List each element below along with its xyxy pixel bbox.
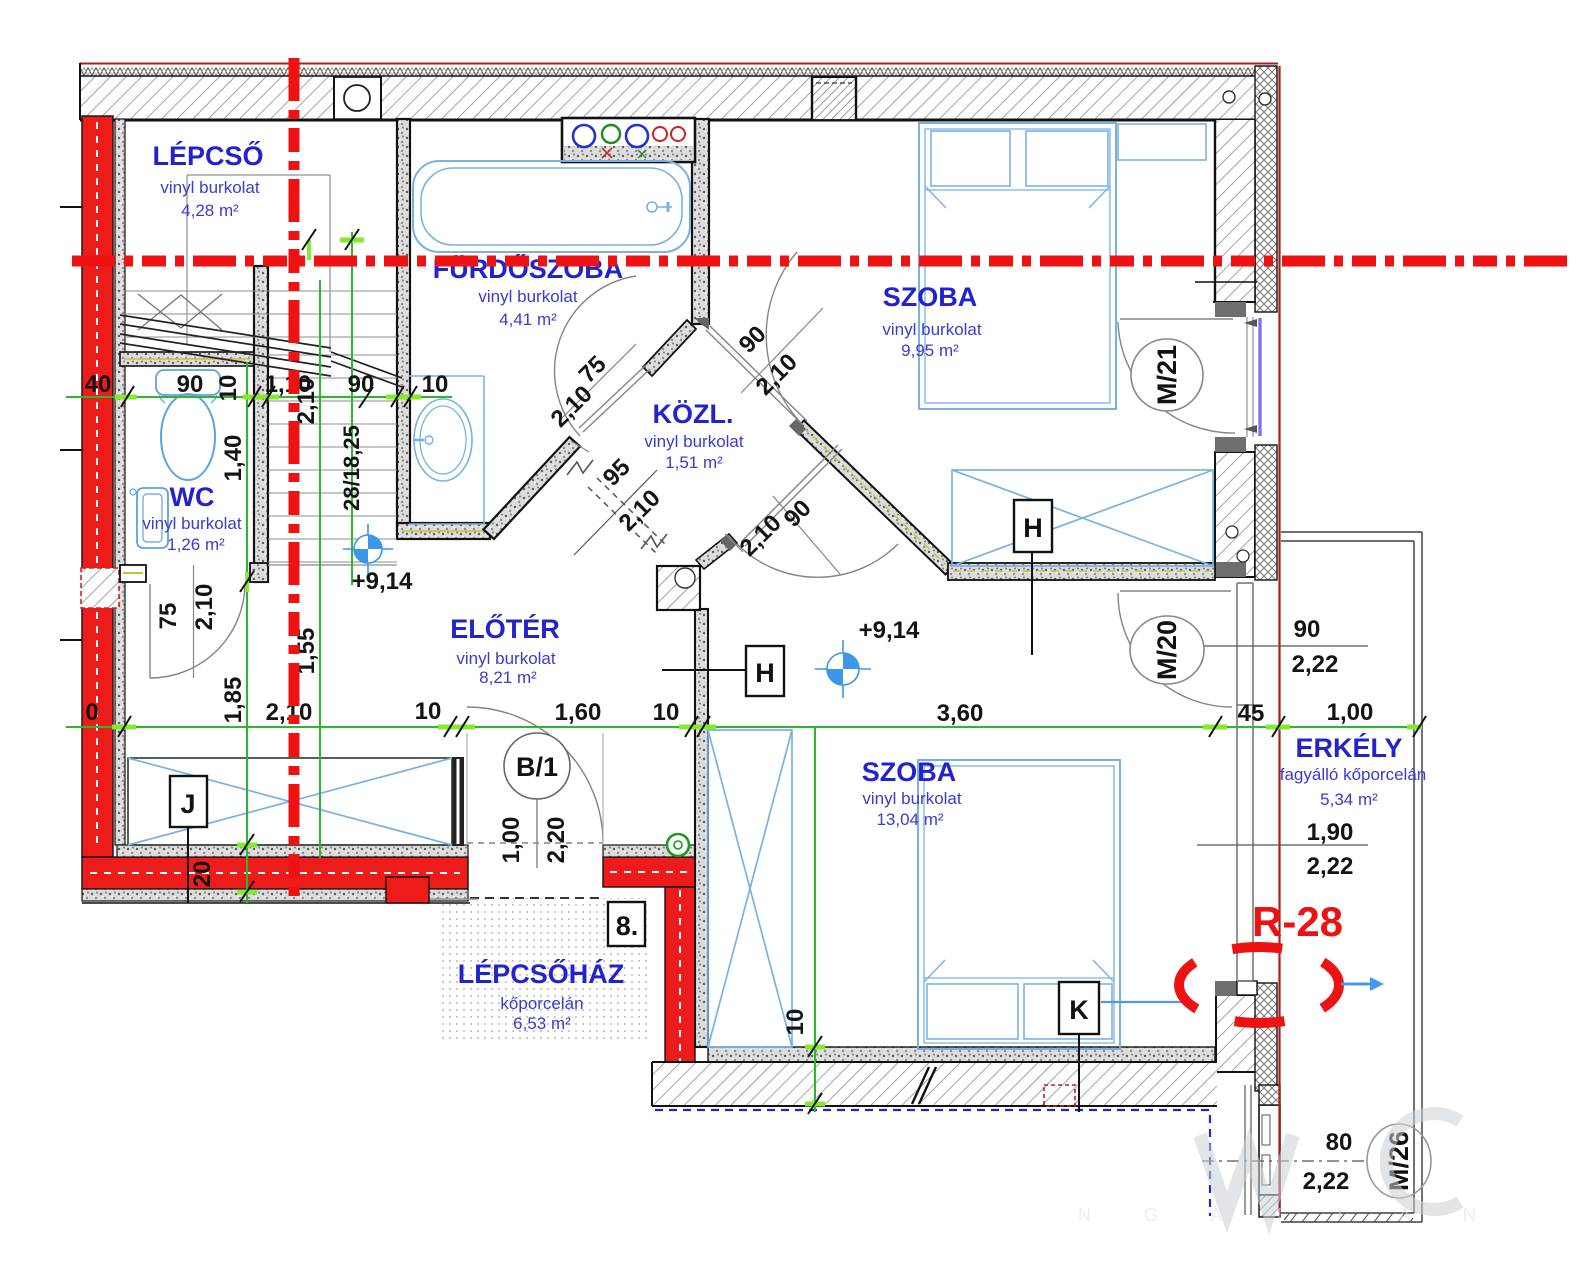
svg-text:3,60: 3,60 <box>937 700 984 727</box>
svg-text:80: 80 <box>1326 1129 1353 1156</box>
svg-text:KÖZL.: KÖZL. <box>653 399 734 429</box>
svg-text:vinyl burkolat: vinyl burkolat <box>478 287 577 306</box>
svg-text:J: J <box>180 789 195 819</box>
svg-text:1,90: 1,90 <box>1307 819 1354 846</box>
svg-text:90: 90 <box>1294 616 1321 643</box>
svg-text:vinyl burkolat: vinyl burkolat <box>882 320 981 339</box>
svg-text:fagyálló kőporcelán: fagyálló kőporcelán <box>1280 765 1426 784</box>
svg-text:SZOBA: SZOBA <box>883 282 978 312</box>
svg-text:ELŐTÉR: ELŐTÉR <box>450 613 560 644</box>
svg-text:H: H <box>755 658 775 688</box>
svg-text:vinyl burkolat: vinyl burkolat <box>160 178 259 197</box>
svg-text:vinyl burkolat: vinyl burkolat <box>644 432 743 451</box>
svg-text:40: 40 <box>85 371 112 398</box>
svg-text:6,53 m²: 6,53 m² <box>513 1014 571 1033</box>
svg-text:ERKÉLY: ERKÉLY <box>1295 732 1402 763</box>
svg-text:2,10: 2,10 <box>191 584 218 631</box>
svg-text:10: 10 <box>415 698 442 725</box>
svg-text:2,20: 2,20 <box>543 817 570 864</box>
svg-text:1,85: 1,85 <box>220 677 247 724</box>
svg-text:9,95 m²: 9,95 m² <box>901 341 959 360</box>
svg-text:2,22: 2,22 <box>1303 1168 1350 1195</box>
svg-text:20: 20 <box>189 861 216 888</box>
svg-text:28/18,25: 28/18,25 <box>339 425 364 511</box>
svg-text:1,00: 1,00 <box>498 817 525 864</box>
svg-text:SZOBA: SZOBA <box>862 757 957 787</box>
svg-text:+9,14: +9,14 <box>352 568 413 595</box>
svg-text:8.: 8. <box>616 911 639 941</box>
svg-text:45: 45 <box>1238 700 1265 727</box>
svg-text:75: 75 <box>155 603 182 630</box>
svg-text:N G A T L A N: N G A T L A N <box>1078 1205 1500 1225</box>
svg-text:4,41 m²: 4,41 m² <box>499 310 557 329</box>
svg-text:vinyl burkolat: vinyl burkolat <box>142 514 241 533</box>
svg-text:LÉPCSŐHÁZ: LÉPCSŐHÁZ <box>458 958 625 989</box>
svg-text:+9,14: +9,14 <box>859 617 920 644</box>
svg-text:vinyl burkolat: vinyl burkolat <box>456 649 555 668</box>
svg-text:K: K <box>1069 995 1089 1025</box>
svg-text:LÉPCSŐ: LÉPCSŐ <box>152 140 263 171</box>
svg-text:R-28: R-28 <box>1252 898 1343 945</box>
svg-text:1,51 m²: 1,51 m² <box>665 453 723 472</box>
svg-text:0: 0 <box>85 699 98 726</box>
svg-text:1,40: 1,40 <box>220 435 247 482</box>
svg-text:1,00: 1,00 <box>1327 699 1374 726</box>
svg-text:10: 10 <box>782 1009 809 1036</box>
svg-text:10: 10 <box>422 371 449 398</box>
svg-text:1,26 m²: 1,26 m² <box>167 535 225 554</box>
svg-text:10: 10 <box>215 375 242 402</box>
svg-text:vinyl burkolat: vinyl burkolat <box>862 789 961 808</box>
svg-text:10: 10 <box>653 699 680 726</box>
svg-text:13,04 m²: 13,04 m² <box>876 810 943 829</box>
svg-text:5,34 m²: 5,34 m² <box>1320 790 1378 809</box>
svg-text:2,22: 2,22 <box>1307 853 1354 880</box>
svg-text:WC: WC <box>170 482 215 512</box>
svg-text:H: H <box>1023 513 1043 543</box>
svg-text:4,28 m²: 4,28 m² <box>181 201 239 220</box>
svg-text:90: 90 <box>177 371 204 398</box>
svg-text:kőporcelán: kőporcelán <box>500 994 583 1013</box>
svg-text:B/1: B/1 <box>516 752 558 782</box>
svg-text:1,60: 1,60 <box>555 699 602 726</box>
svg-text:2,22: 2,22 <box>1292 651 1339 678</box>
svg-text:8,21 m²: 8,21 m² <box>479 668 537 687</box>
svg-text:M/20: M/20 <box>1152 620 1182 680</box>
svg-text:M/21: M/21 <box>1152 345 1182 405</box>
svg-text:90: 90 <box>348 371 375 398</box>
